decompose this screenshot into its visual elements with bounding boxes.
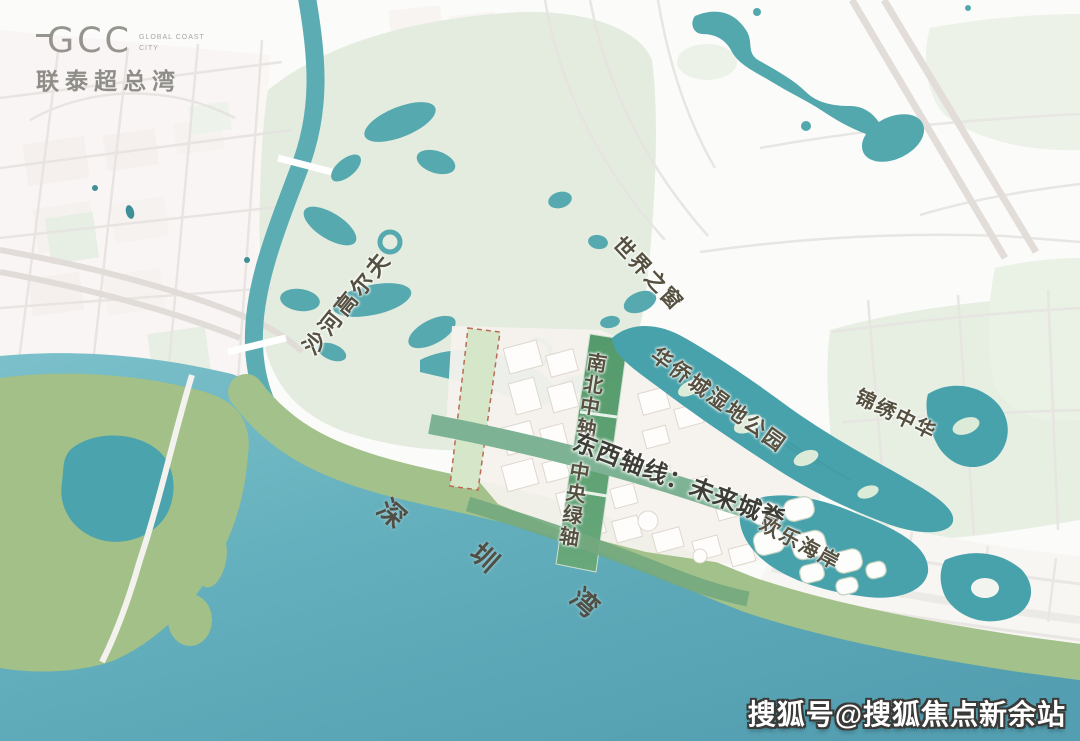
- peninsula-lake: [61, 435, 173, 541]
- logo-chinese-name: 联泰超总湾: [36, 62, 205, 96]
- planning-map: 沙河高尔夫 世界之窗 华侨城湿地公园 锦绣中华 南北中轴：中央绿轴 东西轴线：未…: [0, 0, 1080, 741]
- developer-logo: GCC GLOBAL COAST CITY 联泰超总湾: [36, 24, 205, 96]
- logo-tagline: GLOBAL COAST CITY: [139, 33, 205, 54]
- sohu-watermark: 搜狐号@搜狐焦点新余站: [748, 693, 1066, 733]
- logo-brand-mark: GCC: [36, 24, 132, 59]
- map-canvas: [0, 0, 1080, 741]
